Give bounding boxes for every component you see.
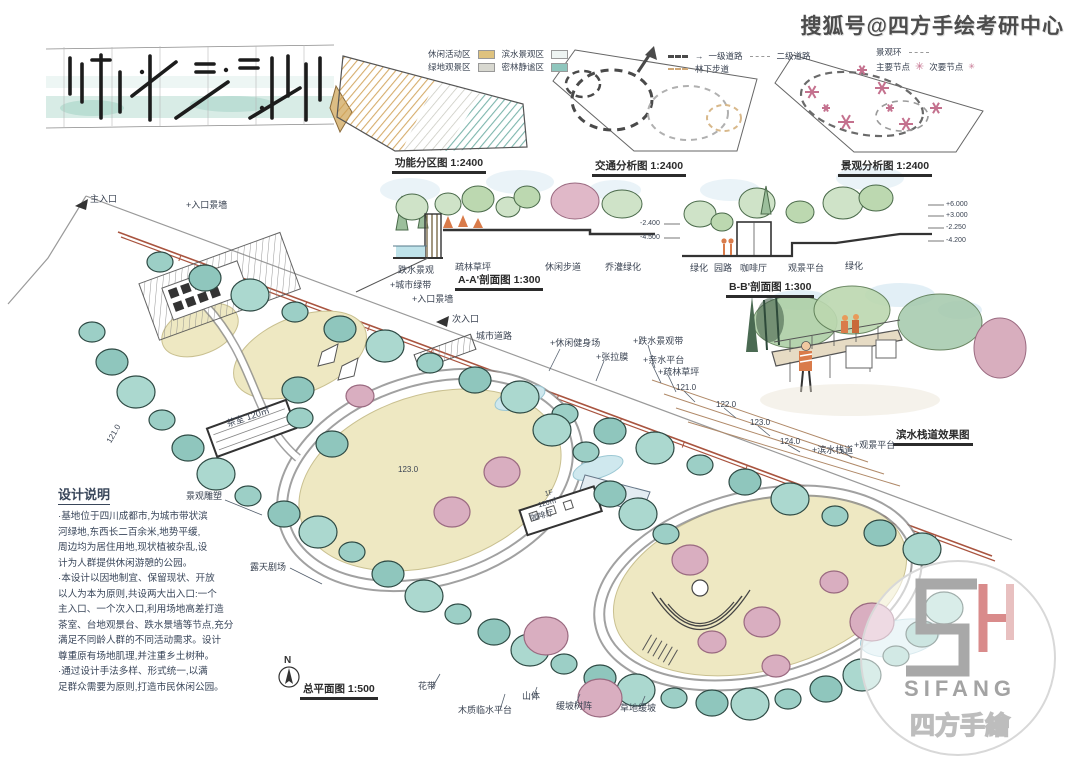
function-legend: 休闲活动区 滨水景观区 绿地观景区 密林静谧区: [428, 48, 570, 74]
bb-elev-1: +6.000: [946, 201, 968, 208]
bb-label-cafe: 咖啡厅: [740, 264, 767, 273]
plan-caption: 总平面图 1:500: [300, 681, 378, 698]
plan-label-hill: 山体: [522, 692, 540, 701]
plan-label-membrane: +张拉膜: [596, 353, 628, 362]
aa-label-planting: 乔灌绿化: [605, 263, 641, 272]
zone-chip-forest: [551, 63, 568, 72]
zone-chip-waterfront: [551, 50, 568, 59]
plan-label-green-belt: +城市绿带: [390, 281, 431, 290]
plan-label-secondary-entrance: 次入口: [452, 315, 479, 324]
north-label: N: [284, 655, 291, 666]
function-diagram-caption: 功能分区图 1:2400: [392, 155, 486, 172]
zone-chip-green: [478, 63, 495, 72]
sifang-logo-name: SIFANG: [893, 676, 1027, 702]
plan-contour-124: 124.0: [780, 438, 800, 446]
section-aa-caption: A-A'剖面图 1:300: [455, 272, 543, 289]
traffic-diagram-caption: 交通分析图 1:2400: [592, 158, 686, 175]
scanned-landscape-plan-sheet: 搜狐号@四方手绘考研中心 功能分区图 1:2400 交通分析图 1:2400 景…: [0, 0, 1080, 764]
plan-label-flower-belt: 花带: [418, 682, 436, 691]
plan-label-lawn: +疏林草坪: [658, 368, 699, 377]
secondary-road-dash: [750, 56, 770, 57]
bb-label-green1: 绿化: [690, 264, 708, 273]
plan-label-waterfall-belt: +跌水景观带: [633, 337, 683, 346]
design-notes-title: 设计说明: [58, 484, 110, 505]
minor-node-star-icon: ✳: [968, 61, 975, 73]
perspective-sketch: [746, 283, 1026, 416]
scenic-ring-dash: [909, 52, 929, 53]
zone-chip-leisure: [478, 50, 495, 59]
aa-label-lawn: 疏林草坪: [455, 263, 491, 272]
perspective-caption: 滨水栈道效果图: [893, 427, 973, 444]
bb-label-green2: 绿化: [845, 262, 863, 271]
aa-label-path: 休闲步道: [545, 263, 581, 272]
plan-label-wood-deck: 木质临水平台: [458, 706, 512, 715]
aa-label-waterfall: 跌水景观: [398, 266, 434, 275]
traffic-legend: → 一级道路 二级道路 林下步道: [666, 50, 811, 76]
design-notes: 设计说明 ·基地位于四川成都市,为城市带状滨 河绿地,东西长二百余米,地势平缓,…: [58, 484, 270, 695]
plan-contour-121: 121.0: [676, 384, 696, 392]
bb-elev-4: -4.200: [946, 237, 966, 244]
plan-label-boardwalk: +滨水栈道: [812, 446, 853, 455]
north-compass: [279, 667, 299, 687]
scenery-diagram-caption: 景观分析图 1:2400: [838, 158, 932, 175]
plan-label-water-deck: +亲水平台: [643, 356, 684, 365]
sifang-logo-chinese: 四方手繪: [886, 706, 1034, 742]
bb-elev-3: -2.250: [946, 224, 966, 231]
plan-label-grass-slope: 草地缓坡: [620, 704, 656, 713]
section-bb-caption: B-B'剖面图 1:300: [726, 279, 814, 296]
plan-label-fitness: +休闲健身场: [550, 339, 600, 348]
plan-label-view-deck: +观景平台: [854, 441, 895, 450]
plan-label-entry-wall-1: +入口景墙: [186, 201, 227, 210]
primary-road-dash: [668, 55, 688, 58]
plan-label-tree-array: 缓坡树阵: [556, 702, 592, 711]
plan-contour-123: 123.0: [750, 419, 770, 427]
title-art-lettering: [46, 45, 352, 132]
plan-label-entry-wall-2: +入口景墙: [412, 295, 453, 304]
sohu-watermark: 搜狐号@四方手绘考研中心: [801, 10, 1064, 40]
bb-label-road: 园路: [714, 264, 732, 273]
trail-dash: [668, 68, 688, 70]
plan-contour-lawn: 123.0: [398, 466, 418, 474]
plan-label-main-entrance: 主入口: [90, 195, 117, 204]
secondary-entrance-arrow-icon: [436, 316, 449, 327]
bb-elev-2: +3.000: [946, 212, 968, 219]
major-node-star-icon: ✳: [915, 59, 924, 76]
entrance-arrow-icon: [75, 199, 88, 210]
section-bb-drawing: [664, 166, 944, 256]
bb-label-deck: 观景平台: [788, 264, 824, 273]
plan-contour-122: 122.0: [716, 401, 736, 409]
bb-elev-l2: -4.500: [640, 234, 660, 241]
bb-elev-l1: -2.400: [640, 220, 660, 227]
scenery-legend: 景观环 主要节点✳ 次要节点✳: [876, 46, 975, 75]
plan-label-city-road: 城市道路: [476, 332, 512, 341]
